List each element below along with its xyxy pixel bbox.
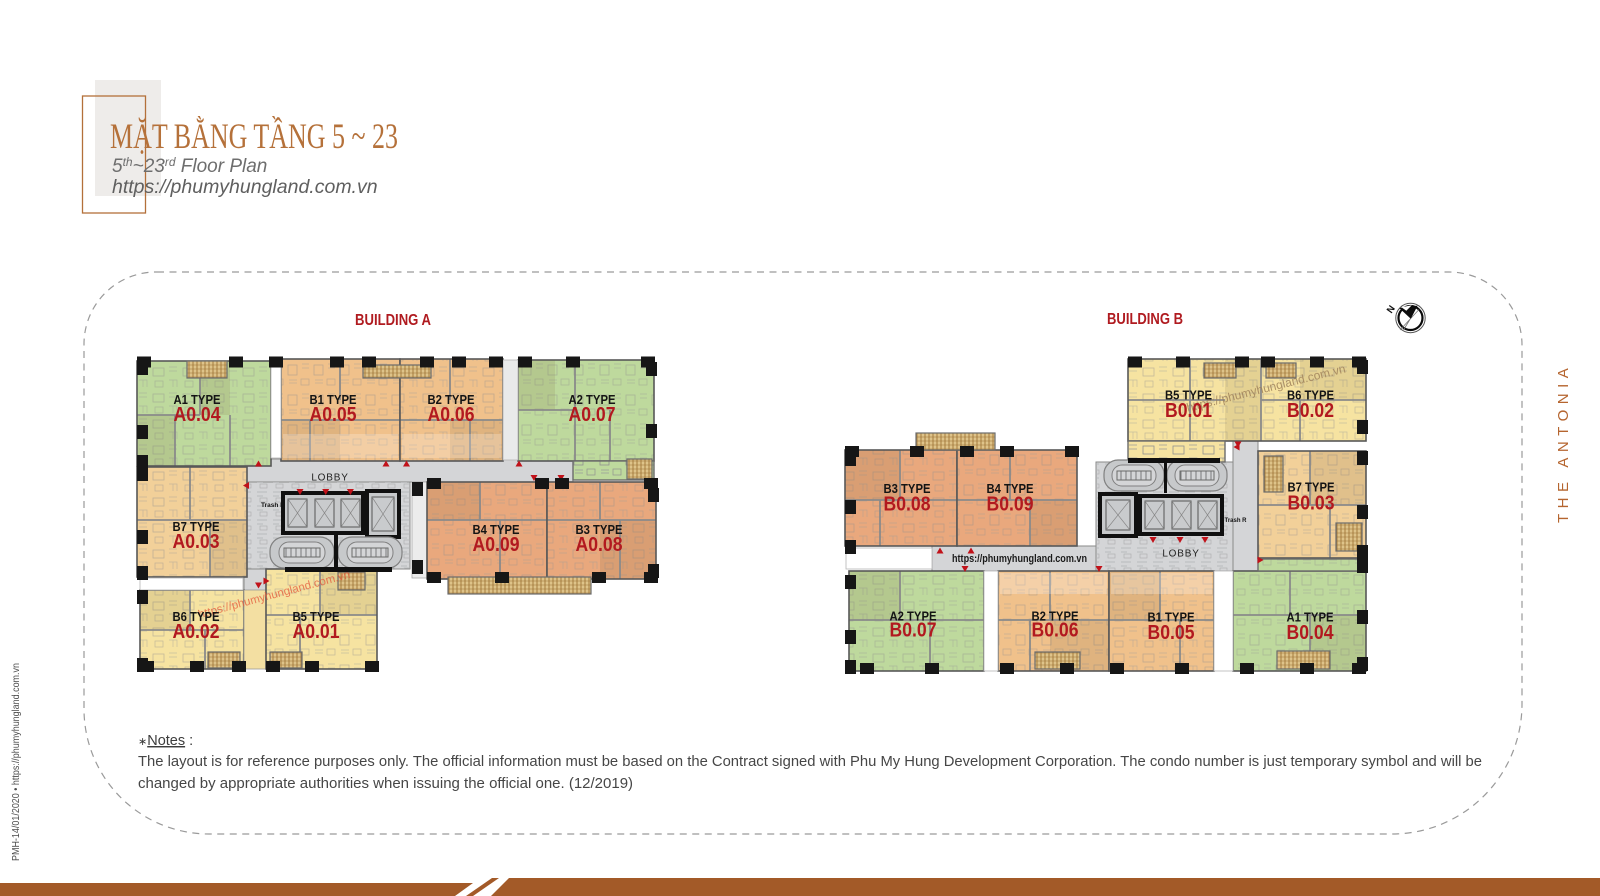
svg-text:BUILDING A: BUILDING A <box>355 312 431 329</box>
svg-text:B0.08: B0.08 <box>884 493 931 516</box>
svg-text:A0.03: A0.03 <box>173 530 220 553</box>
svg-text:A0.02: A0.02 <box>173 620 220 643</box>
svg-text:Trash R: Trash R <box>261 502 285 509</box>
svg-text:B0.05: B0.05 <box>1148 621 1195 644</box>
svg-text:The layout is for reference pu: The layout is for reference purposes onl… <box>138 753 1482 770</box>
svg-text:B0.07: B0.07 <box>890 619 937 642</box>
svg-text:B0.04: B0.04 <box>1287 621 1335 644</box>
svg-text:A0.08: A0.08 <box>576 533 623 556</box>
svg-text:https://phumyhungland.com.vn: https://phumyhungland.com.vn <box>112 176 378 198</box>
svg-text:https://phumyhungland.com.vn: https://phumyhungland.com.vn <box>952 553 1087 565</box>
svg-text:A0.07: A0.07 <box>569 403 616 426</box>
svg-text:A0.06: A0.06 <box>428 403 475 426</box>
svg-text:Trash R: Trash R <box>1225 518 1248 524</box>
svg-text:B0.06: B0.06 <box>1032 619 1079 642</box>
svg-text:B0.02: B0.02 <box>1287 399 1334 422</box>
svg-text:B0.01: B0.01 <box>1165 399 1212 422</box>
svg-text:A0.04: A0.04 <box>174 403 222 426</box>
svg-text:LOBBY: LOBBY <box>311 473 348 484</box>
svg-text:BUILDING B: BUILDING B <box>1107 311 1183 328</box>
svg-text:5th~23rd Floor Plan: 5th~23rd Floor Plan <box>112 155 267 177</box>
svg-text:MẶT BẰNG TẦNG 5 ~ 23: MẶT BẰNG TẦNG 5 ~ 23 <box>110 116 398 156</box>
svg-text:changed by appropriate authori: changed by appropriate authorities when … <box>138 775 633 792</box>
svg-text:∗Notes :: ∗Notes : <box>138 733 193 749</box>
svg-text:B0.09: B0.09 <box>987 493 1034 516</box>
svg-text:PMH-14/01/2020 • https://phumy: PMH-14/01/2020 • https://phumyhungland.c… <box>10 663 22 861</box>
svg-text:B0.03: B0.03 <box>1288 492 1335 515</box>
svg-text:A0.05: A0.05 <box>310 403 357 426</box>
svg-text:THE ANTONIA: THE ANTONIA <box>1555 363 1572 523</box>
svg-text:LOBBY: LOBBY <box>1162 549 1199 560</box>
svg-text:A0.01: A0.01 <box>293 620 340 643</box>
svg-text:A0.09: A0.09 <box>473 533 520 556</box>
